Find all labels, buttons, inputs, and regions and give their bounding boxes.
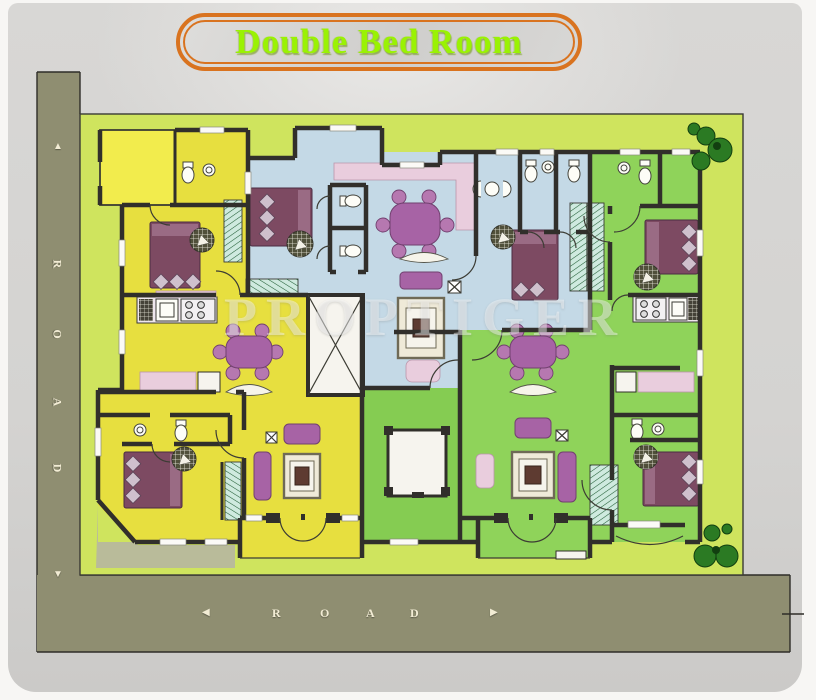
floor-plan-page: Double Bed Room ▲ R O A D ▼ ◀ R O A D ▶ …	[0, 0, 816, 700]
sink-icon	[203, 164, 215, 176]
sink-icon	[542, 161, 554, 173]
road-letter: D	[410, 607, 419, 619]
entry-step	[556, 551, 586, 559]
toilet-icon	[568, 160, 580, 182]
armchair-icon	[406, 360, 440, 382]
title-banner-inner: Double Bed Room	[183, 20, 575, 64]
sink-icon	[156, 299, 178, 321]
road-letter: O	[52, 329, 64, 338]
road-letter: A	[366, 607, 375, 619]
sink-icon	[669, 298, 687, 320]
sink-icon	[618, 162, 630, 174]
road-letter: A	[51, 398, 63, 407]
left-road	[37, 72, 80, 652]
sink-icon	[134, 424, 146, 436]
bed-icon	[512, 230, 558, 300]
toilet-icon	[525, 160, 537, 182]
road-arrow-down: ▼	[53, 570, 63, 580]
bottom-road	[37, 575, 804, 652]
round-table-icon	[634, 264, 660, 290]
courtyard-box	[384, 426, 450, 498]
road-arrow-left: ◀	[202, 608, 210, 618]
road-arrow-up: ▲	[53, 142, 63, 152]
dresser-icon	[638, 372, 694, 392]
toilet-icon	[631, 419, 643, 440]
toilet-icon	[340, 245, 361, 257]
stove-icon	[636, 298, 666, 320]
round-table-icon	[172, 447, 196, 471]
tv-icon	[556, 430, 568, 441]
stairwell-box	[308, 295, 363, 395]
wardrobe-icon	[225, 462, 241, 520]
round-table-icon	[190, 228, 214, 252]
round-table-icon	[287, 231, 313, 257]
staircase-icon	[570, 203, 604, 291]
round-table-icon	[491, 225, 515, 249]
dresser-icon	[140, 372, 196, 392]
road-arrow-right: ▶	[490, 608, 498, 618]
title-banner: Double Bed Room	[176, 13, 582, 71]
road-letter: O	[320, 607, 329, 619]
toilet-icon	[639, 160, 651, 184]
sink-icon	[652, 423, 664, 435]
toilet-icon	[340, 195, 361, 207]
toilet-icon	[182, 162, 194, 183]
kitchen-counter	[633, 296, 701, 322]
open-terrace	[100, 130, 175, 205]
road-letter: R	[272, 607, 281, 619]
road-letter: R	[51, 260, 63, 269]
site-plan-svg	[0, 0, 816, 700]
wardrobe-icon	[224, 200, 242, 262]
road-letter: D	[51, 464, 63, 473]
armchair-icon	[476, 454, 494, 488]
toilet-icon	[175, 420, 187, 441]
tv-icon	[448, 281, 461, 293]
stove-icon	[181, 299, 215, 321]
page-title: Double Bed Room	[235, 22, 522, 62]
round-table-icon	[634, 445, 658, 469]
dressing-mirror-icon	[473, 181, 511, 197]
tv-icon	[266, 432, 277, 443]
